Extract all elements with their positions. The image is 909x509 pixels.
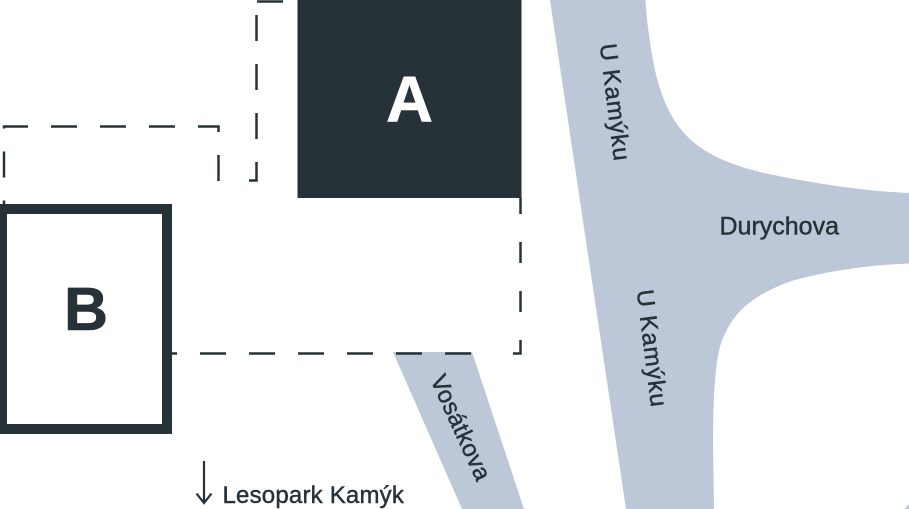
svg-text:Lesopark Kamýk: Lesopark Kamýk	[223, 482, 405, 509]
svg-text:A: A	[386, 63, 433, 136]
svg-text:Durychova: Durychova	[720, 213, 840, 241]
svg-text:B: B	[64, 275, 108, 343]
